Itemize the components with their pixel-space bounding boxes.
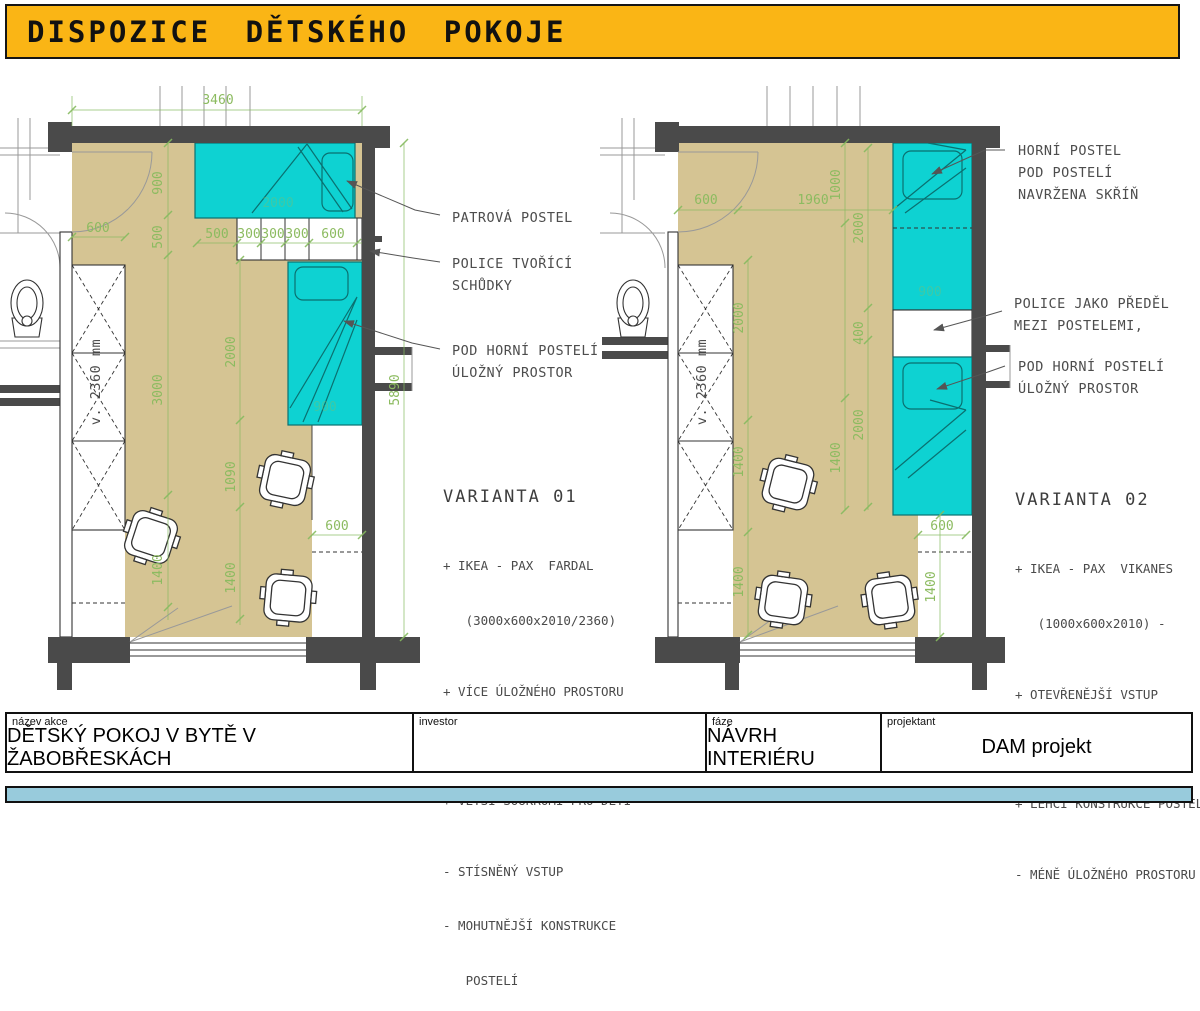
field-projektant: projektant DAM projekt	[882, 714, 1191, 771]
svg-text:3460: 3460	[202, 93, 233, 108]
svg-text:500: 500	[151, 225, 166, 248]
note-police-predel: POLICE JAKO PŘEDĚL	[1014, 295, 1169, 312]
note-police: POLICE TVOŘÍCÍ	[452, 255, 573, 272]
field-investor: investor	[414, 714, 707, 771]
divider-shelf	[893, 310, 972, 357]
svg-text:600: 600	[930, 519, 953, 534]
svg-text:1400: 1400	[151, 554, 166, 585]
svg-text:POD POSTELÍ: POD POSTELÍ	[1018, 164, 1113, 181]
wardrobe-height-label: v. 2360 mm	[694, 339, 710, 425]
svg-text:1400: 1400	[924, 571, 939, 602]
bathroom-wall	[0, 398, 62, 406]
svg-text:1400: 1400	[732, 566, 747, 597]
note-patrova-postel: PATROVÁ POSTEL	[452, 209, 573, 226]
field-label: fáze	[712, 716, 733, 728]
title-block: název akce DĚTSKÝ POKOJ V BYTĚ V ŽABOBŘE…	[5, 712, 1193, 773]
svg-text:300: 300	[285, 227, 308, 242]
svg-text:300: 300	[237, 227, 260, 242]
svg-text:1960: 1960	[797, 193, 828, 208]
bathroom-wall	[0, 385, 62, 393]
bathroom-wall	[602, 337, 668, 345]
field-label: název akce	[12, 716, 68, 728]
wall-top	[668, 126, 998, 143]
footer-accent-bar	[5, 786, 1193, 803]
svg-text:MEZI POSTELEMI,: MEZI POSTELEMI,	[1014, 318, 1143, 334]
svg-text:ÚLOŽNÝ PROSTOR: ÚLOŽNÝ PROSTOR	[1018, 379, 1139, 397]
field-label: projektant	[887, 716, 935, 728]
svg-text:2000: 2000	[852, 409, 867, 440]
svg-text:2000: 2000	[262, 196, 293, 211]
variant-02-title: VARIANTA 02	[1015, 489, 1200, 512]
svg-text:500: 500	[205, 227, 228, 242]
phase-value: NÁVRH INTERIÉRU	[707, 714, 880, 771]
drawing-title-bar: DISPOZICE DĚTSKÉHO POKOJE	[5, 4, 1180, 59]
svg-text:1090: 1090	[224, 461, 239, 492]
bathroom-wall	[602, 351, 668, 359]
svg-text:600: 600	[321, 227, 344, 242]
wardrobe-pax: v. 2360 mm	[678, 265, 733, 530]
wall-bottom	[915, 637, 1005, 663]
svg-text:1400: 1400	[732, 446, 747, 477]
note-horni-postel: HORNÍ POSTEL	[1018, 142, 1122, 159]
wall-right	[972, 143, 986, 637]
svg-text:1400: 1400	[224, 562, 239, 593]
svg-text:2000: 2000	[224, 336, 239, 367]
wall-top	[60, 126, 390, 143]
wall-top	[984, 126, 1000, 148]
svg-text:5890: 5890	[388, 374, 403, 405]
project-name: DĚTSKÝ POKOJ V BYTĚ V ŽABOBŘESKÁCH	[7, 714, 412, 771]
svg-text:300: 300	[261, 227, 284, 242]
svg-text:900: 900	[918, 285, 941, 300]
wardrobe-height-label: v. 2360 mm	[88, 339, 104, 425]
note-ulozny-prostor: POD HORNÍ POSTELÍ	[1018, 358, 1165, 375]
svg-text:900: 900	[313, 400, 336, 415]
svg-text:900: 900	[151, 171, 166, 194]
toilet-icon	[617, 280, 649, 337]
svg-text:SCHŮDKY: SCHŮDKY	[452, 276, 512, 294]
window	[740, 643, 915, 656]
svg-text:1000: 1000	[829, 169, 844, 200]
wall-bottom	[48, 637, 130, 663]
wall-right	[362, 143, 375, 637]
page-title: DISPOZICE DĚTSKÉHO POKOJE	[27, 15, 567, 49]
note-ulozny-prostor: POD HORNÍ POSTELÍ	[452, 342, 599, 359]
wall-bottom	[306, 637, 420, 663]
svg-text:1400: 1400	[829, 442, 844, 473]
field-nazev-akce: název akce DĚTSKÝ POKOJ V BYTĚ V ŽABOBŘE…	[7, 714, 414, 771]
wall-top	[375, 126, 390, 148]
bed-lower	[893, 357, 972, 515]
field-label: investor	[419, 716, 458, 728]
svg-text:ÚLOŽNÝ PROSTOR: ÚLOŽNÝ PROSTOR	[452, 363, 573, 381]
svg-text:NAVRŽENA SKŘÍŇ: NAVRŽENA SKŘÍŇ	[1018, 185, 1139, 203]
wall-left	[668, 232, 678, 637]
toilet-icon	[11, 280, 43, 337]
svg-text:2000: 2000	[852, 212, 867, 243]
svg-text:2000: 2000	[732, 302, 747, 333]
variant-01-title: VARIANTA 01	[443, 486, 643, 509]
wall-left	[60, 232, 72, 637]
wardrobe-pax: v. 2360 mm	[72, 265, 125, 530]
svg-text:400: 400	[852, 321, 867, 344]
svg-text:3000: 3000	[151, 374, 166, 405]
svg-text:600: 600	[694, 193, 717, 208]
svg-text:600: 600	[86, 221, 109, 236]
window	[130, 643, 306, 656]
variant-02-summary: VARIANTA 02 + IKEA - PAX VIKANES (1000x6…	[1015, 455, 1200, 904]
field-faze: fáze NÁVRH INTERIÉRU	[707, 714, 882, 771]
svg-text:600: 600	[325, 519, 348, 534]
wall-bottom	[655, 637, 740, 663]
